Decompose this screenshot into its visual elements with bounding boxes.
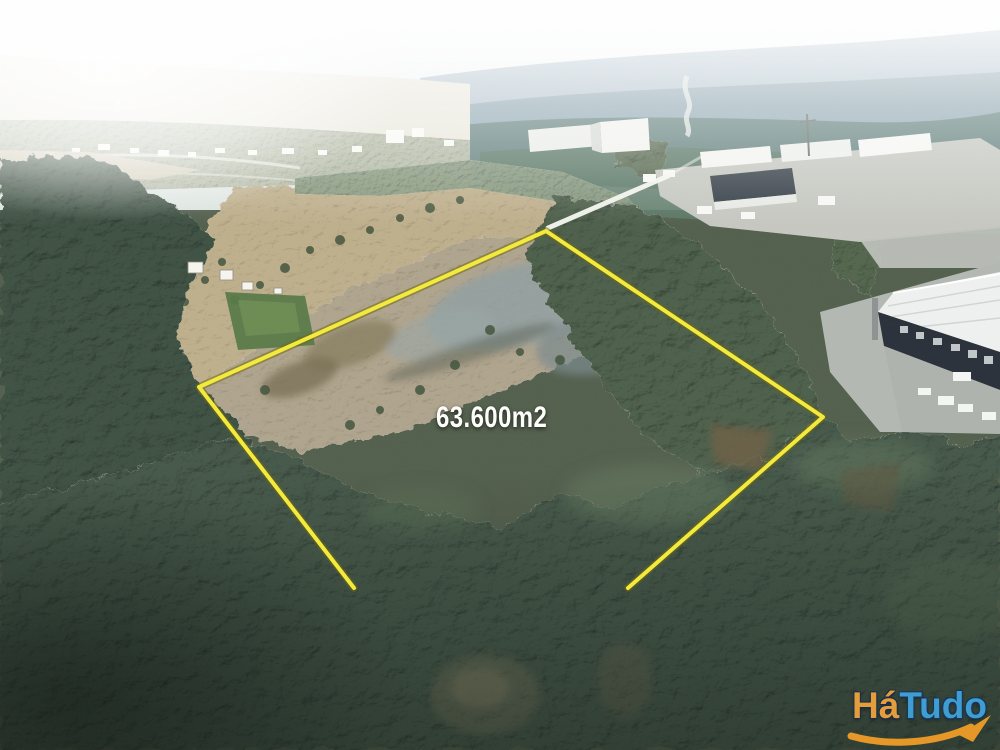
hatudo-watermark: HáTudo <box>845 687 997 750</box>
aerial-photo: 63.600m2 HáTudo <box>0 0 1000 750</box>
brand-ha: Há <box>852 685 899 726</box>
area-label: 63.600m2 <box>436 401 547 435</box>
grain-overlay <box>0 0 1000 750</box>
brand-tudo: Tudo <box>899 685 987 726</box>
terrain-render <box>0 0 1000 750</box>
brand-wordmark: HáTudo <box>845 687 997 724</box>
